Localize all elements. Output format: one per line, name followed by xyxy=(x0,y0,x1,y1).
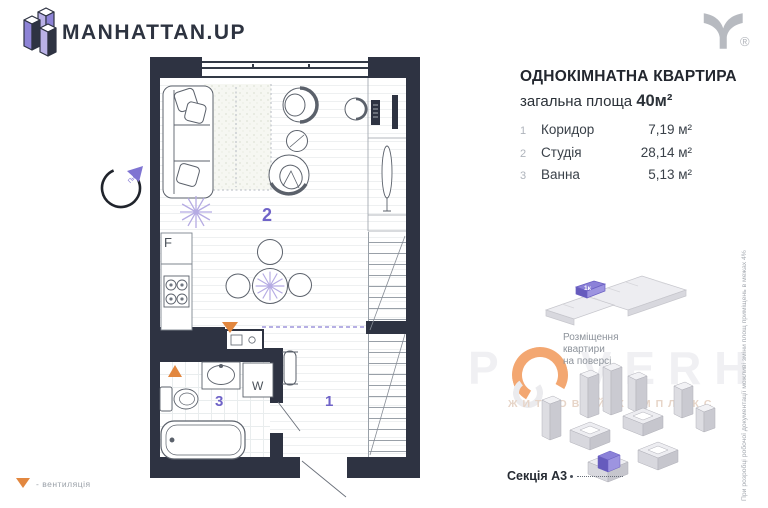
row-num: 3 xyxy=(520,170,541,182)
row-name: Коридор xyxy=(541,122,594,137)
building-complex-render xyxy=(528,360,728,485)
room-label-studio: 2 xyxy=(262,205,272,226)
registered-trademark: ® xyxy=(740,34,750,49)
staircase xyxy=(368,232,407,457)
total-area-value: 40м² xyxy=(636,92,672,110)
disclaimer-text: При розробці робочої документації можлив… xyxy=(741,233,753,501)
manhattan-logo-icon xyxy=(16,6,62,58)
row-name: Студія xyxy=(541,145,582,160)
fridge-label: F xyxy=(164,235,172,250)
wall-bath-corridor-upper xyxy=(270,362,283,403)
wall-bottom-left xyxy=(150,457,300,478)
svg-text:Пн: Пн xyxy=(127,175,137,185)
legend-ventilation: - вентиляція xyxy=(36,479,91,489)
room-table: 1 Коридор 7,19 м² 2 Студія 28,14 м² 3 Ва… xyxy=(520,122,692,190)
unit-tag: 1к xyxy=(584,285,592,292)
wall-left xyxy=(150,70,160,478)
table-row: 3 Ванна 5,13 м² xyxy=(520,167,692,190)
vent-triangle-icon xyxy=(16,478,30,488)
wall-bath-corridor-lower xyxy=(270,433,283,457)
washer-label: W xyxy=(252,379,263,393)
wall-right xyxy=(406,70,420,458)
table-row: 2 Студія 28,14 м² xyxy=(520,145,692,168)
total-area-label: загальна площа xyxy=(520,93,632,110)
row-name: Ванна xyxy=(541,167,580,182)
section-dot xyxy=(570,475,573,478)
wall-stub-right xyxy=(366,321,420,334)
apartment-title: ОДНОКІМНАТНА КВАРТИРА xyxy=(520,68,737,86)
wall-bottom-right xyxy=(347,457,420,478)
placement-note: Розміщення квартири на поверсі xyxy=(563,332,619,368)
section-label: Секція А3 xyxy=(507,469,567,483)
room-label-bathroom: 3 xyxy=(215,393,223,410)
wall-bath-top-2 xyxy=(225,348,283,362)
room-label-corridor: 1 xyxy=(325,393,333,410)
row-area: 5,13 м² xyxy=(648,167,692,182)
row-num: 2 xyxy=(520,148,541,160)
floorplan-page: MANHATTAN.UP ® xyxy=(0,0,768,508)
section-dotted-line xyxy=(577,476,623,477)
table-row: 1 Коридор 7,19 м² xyxy=(520,122,692,145)
north-compass-icon: Пн xyxy=(95,162,148,215)
row-num: 1 xyxy=(520,125,541,137)
row-area: 7,19 м² xyxy=(648,122,692,137)
row-area: 28,14 м² xyxy=(641,145,692,160)
window-top xyxy=(202,61,368,78)
brand-wordmark: MANHATTAN.UP xyxy=(62,21,246,45)
total-area: загальна площа 40м² xyxy=(520,92,672,111)
wall-bath-top xyxy=(150,327,225,362)
